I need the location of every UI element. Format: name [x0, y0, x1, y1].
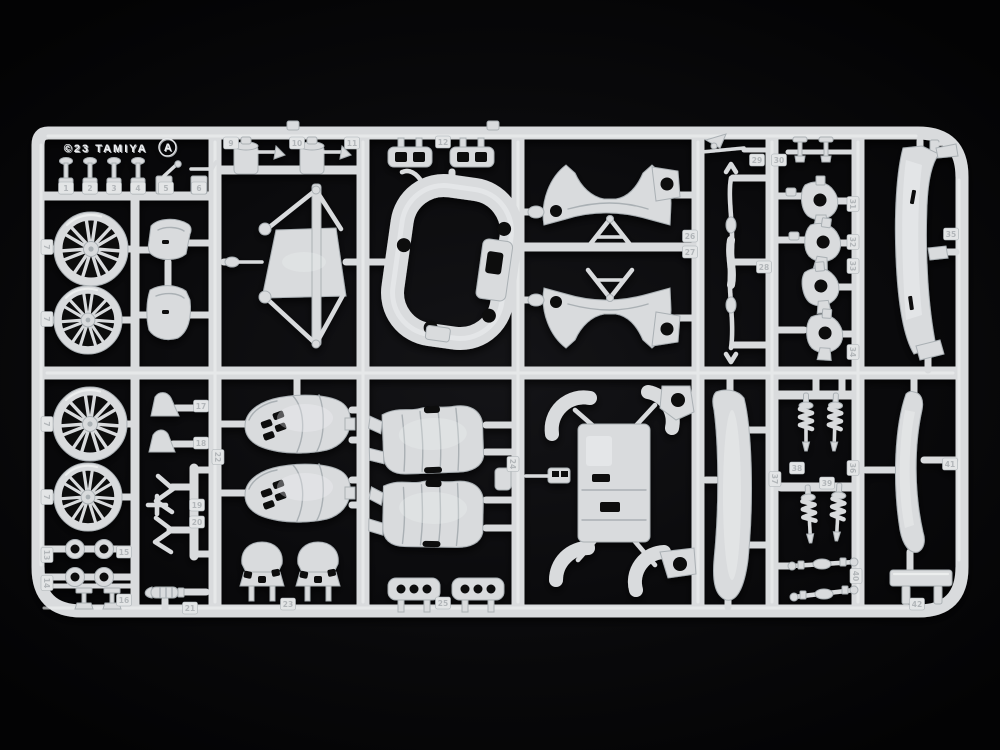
mount-pad: [528, 206, 544, 218]
brand-marking: ©23 TAMIYA ©23 TAMIYA A A: [64, 139, 177, 157]
gate-number-tag: 7: [41, 312, 53, 327]
svg-text:33: 33: [848, 261, 857, 271]
gate-number-tag: 30: [772, 154, 787, 166]
side-skirt-panel: [713, 390, 752, 600]
cap-part: [789, 232, 799, 240]
gate-number-tag: 29: [750, 154, 765, 166]
gate-number-tag: 36: [847, 461, 859, 476]
gate-number-tag: 25: [436, 597, 451, 609]
wheel: [54, 463, 122, 531]
gate-number-tag: 32: [847, 235, 859, 250]
bracket-part: [75, 588, 93, 609]
svg-text:27: 27: [685, 248, 695, 257]
gate-number-tag: 4: [131, 182, 146, 194]
gate-number-tag: 2: [83, 182, 98, 194]
strut-brace-part: [225, 184, 346, 348]
suspension-upright: [805, 308, 845, 361]
svg-text:23: 23: [283, 600, 293, 609]
svg-text:39: 39: [822, 479, 832, 488]
svg-text:10: 10: [292, 139, 302, 148]
gate-number-tag: 9: [224, 137, 239, 149]
svg-text:7: 7: [42, 494, 51, 499]
svg-text:32: 32: [848, 237, 857, 247]
svg-text:13: 13: [42, 550, 51, 560]
wishbone-arm: [588, 270, 632, 302]
gate-number-tag: 34: [847, 345, 859, 360]
sprue-illustration: ©23 TAMIYA ©23 TAMIYA A A: [0, 0, 1000, 750]
zigzag-spring-part: [148, 476, 173, 552]
gate-number-tag: 31: [847, 197, 859, 212]
svg-text:4: 4: [135, 184, 140, 193]
cap-part: [786, 188, 796, 196]
suspension-upright: [800, 261, 841, 315]
svg-text:26: 26: [685, 232, 695, 241]
frame-nub: [487, 121, 499, 130]
twin-port-part: [450, 138, 494, 167]
twin-port-part: [388, 138, 432, 167]
seat-cushion-shell: [368, 479, 483, 548]
svg-text:36: 36: [848, 463, 857, 473]
ring-part: [95, 540, 114, 559]
ring-part: [95, 568, 114, 587]
gate-number-tag: 20: [190, 516, 205, 528]
svg-text:19: 19: [192, 501, 202, 510]
gate-number-tag: 19: [190, 499, 205, 511]
scoop-part: [148, 219, 191, 259]
gate-number-tag: 3: [107, 182, 122, 194]
coilover-shock: [827, 393, 843, 451]
gate-number-tag: 11: [345, 137, 360, 149]
gate-number-tag: 17: [194, 400, 209, 412]
gate-number-tag: 10: [290, 137, 305, 149]
gate-number-tag: 40: [850, 569, 862, 584]
svg-text:16: 16: [119, 596, 129, 605]
gate-number-tag: 41: [943, 458, 958, 470]
svg-text:28: 28: [759, 263, 769, 272]
sprue: ©23 TAMIYA ©23 TAMIYA A A: [38, 121, 962, 614]
gate-number-tag: 26: [683, 230, 698, 242]
cone-part: [149, 430, 175, 452]
wheel: [53, 387, 127, 461]
gate-number-tag: 42: [910, 598, 925, 610]
gate-number-tag: 21: [183, 602, 198, 614]
gate-number-tag: 1: [59, 182, 74, 194]
gate-number-tag: 7: [41, 490, 53, 505]
suspension-upright: [801, 176, 837, 227]
svg-text:20: 20: [192, 518, 202, 527]
gate-number-tag: 37: [769, 472, 781, 487]
roll-hoop-part: [379, 170, 521, 349]
svg-text:38: 38: [792, 464, 802, 473]
gate-number-tag: 24: [507, 457, 519, 472]
driveshaft-part: [788, 558, 858, 570]
stabilizer-bar-part: [726, 164, 736, 362]
gate-number-tag: 35: [944, 228, 959, 240]
svg-text:1: 1: [63, 184, 68, 193]
gate-number-tag: 14: [41, 576, 53, 591]
ring-part: [66, 540, 85, 559]
svg-text:2: 2: [87, 184, 92, 193]
svg-text:5: 5: [163, 184, 168, 193]
svg-text:37: 37: [770, 474, 779, 484]
svg-text:14: 14: [42, 578, 51, 588]
svg-text:11: 11: [347, 139, 357, 148]
cone-part: [151, 393, 179, 416]
wheel: [54, 286, 122, 354]
svg-text:7: 7: [42, 244, 51, 249]
svg-text:17: 17: [196, 402, 206, 411]
gate-number-tag: 12: [436, 136, 451, 148]
svg-text:34: 34: [848, 347, 857, 357]
frame-nub: [287, 121, 299, 130]
seat-frame-part: [296, 542, 340, 601]
gate-number-tag: 15: [117, 546, 132, 558]
coilover-shock: [801, 485, 818, 544]
gate-number-tag: 22: [212, 450, 224, 465]
svg-text:12: 12: [438, 138, 448, 147]
copyright-emboss: ©23 TAMIYA: [64, 143, 148, 155]
svg-text:15: 15: [119, 548, 129, 557]
svg-text:3: 3: [111, 184, 116, 193]
svg-text:9: 9: [228, 139, 233, 148]
svg-text:21: 21: [185, 604, 195, 613]
scoop-part: [147, 286, 191, 340]
gate-number-tag: 27: [683, 246, 698, 258]
svg-text:24: 24: [508, 459, 517, 469]
engine-bulkhead-assembly: [526, 386, 696, 590]
gate-number-tag: 18: [194, 437, 209, 449]
svg-text:29: 29: [752, 156, 762, 165]
gate-number-tag: 7: [41, 417, 53, 432]
svg-text:42: 42: [912, 600, 922, 609]
svg-text:6: 6: [196, 184, 201, 193]
gate-number-tag: 33: [847, 259, 859, 274]
svg-text:40: 40: [851, 571, 860, 581]
coilover-shock: [799, 393, 813, 451]
gate-number-tag: 23: [281, 598, 296, 610]
svg-text:35: 35: [946, 230, 956, 239]
gate-number-tag: 28: [757, 261, 772, 273]
svg-text:25: 25: [438, 599, 448, 608]
sill-panel-part: [895, 392, 924, 553]
mount-pad: [528, 294, 544, 306]
gate-number-tag: 38: [790, 462, 805, 474]
driveshaft-part: [790, 586, 858, 601]
bullet-part: [145, 587, 184, 598]
svg-text:31: 31: [848, 199, 857, 209]
gate-number-tag: 7: [41, 240, 53, 255]
gate-number-tag: 16: [117, 594, 132, 606]
svg-text:7: 7: [42, 316, 51, 321]
svg-text:7: 7: [42, 421, 51, 426]
model-kit-sprue-photo: ©23 TAMIYA ©23 TAMIYA A A: [0, 0, 1000, 750]
seat-back-shell: [245, 464, 355, 522]
seat-cushion-shell: [368, 404, 484, 475]
svg-text:22: 22: [213, 452, 222, 462]
gate-number-tag: 13: [41, 548, 53, 563]
gate-number-tag: 39: [820, 477, 835, 489]
seat-back-shell: [245, 395, 355, 453]
gate-number-tag: 5: [159, 182, 174, 194]
sprue-letter: A: [164, 142, 172, 154]
wheel: [54, 212, 128, 286]
svg-text:41: 41: [945, 460, 955, 469]
svg-text:18: 18: [196, 439, 206, 448]
ring-part: [66, 568, 85, 587]
svg-text:30: 30: [774, 156, 784, 165]
gate-number-tag: 6: [192, 182, 207, 194]
seat-frame-part: [240, 542, 284, 601]
wishbone-arm: [588, 216, 632, 248]
